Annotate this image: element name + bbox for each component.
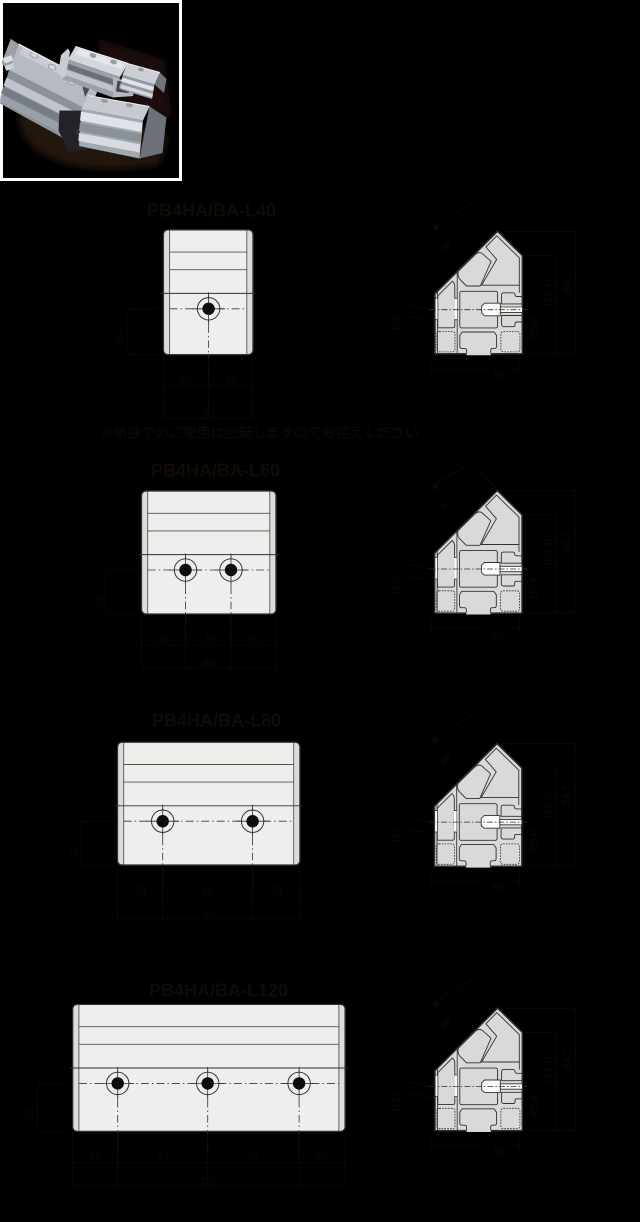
svg-text:20: 20 <box>271 886 283 897</box>
svg-text:40: 40 <box>248 1152 260 1163</box>
svg-text:PB4HA/BA-L80: PB4HA/BA-L80 <box>152 711 281 731</box>
svg-text:20: 20 <box>94 595 105 607</box>
svg-text:60: 60 <box>203 659 215 670</box>
svg-text:PB4HA/BA-L40: PB4HA/BA-L40 <box>147 201 276 221</box>
svg-text:40: 40 <box>203 409 215 420</box>
svg-text:20: 20 <box>90 1152 102 1163</box>
svg-text:20: 20 <box>180 376 192 387</box>
svg-text:80: 80 <box>203 910 215 921</box>
svg-text:20: 20 <box>203 635 215 646</box>
svg-text:20: 20 <box>70 846 81 858</box>
svg-text:20: 20 <box>25 1108 36 1120</box>
svg-text:40: 40 <box>202 886 214 897</box>
svg-text:PB4HA/BA-L120: PB4HA/BA-L120 <box>149 981 288 1001</box>
svg-text:20: 20 <box>135 886 147 897</box>
svg-text:20: 20 <box>317 1152 329 1163</box>
svg-text:20: 20 <box>158 635 170 646</box>
svg-text:120: 120 <box>201 1176 218 1187</box>
svg-text:20: 20 <box>115 334 126 346</box>
svg-text:40: 40 <box>157 1152 169 1163</box>
svg-text:20: 20 <box>248 635 260 646</box>
svg-text:PB4HA/BA-L60: PB4HA/BA-L60 <box>151 461 280 481</box>
svg-text:※単独でのご使用は回転しますのでお控えください: ※単独でのご使用は回転しますのでお控えください <box>100 425 419 441</box>
svg-text:20: 20 <box>225 376 237 387</box>
